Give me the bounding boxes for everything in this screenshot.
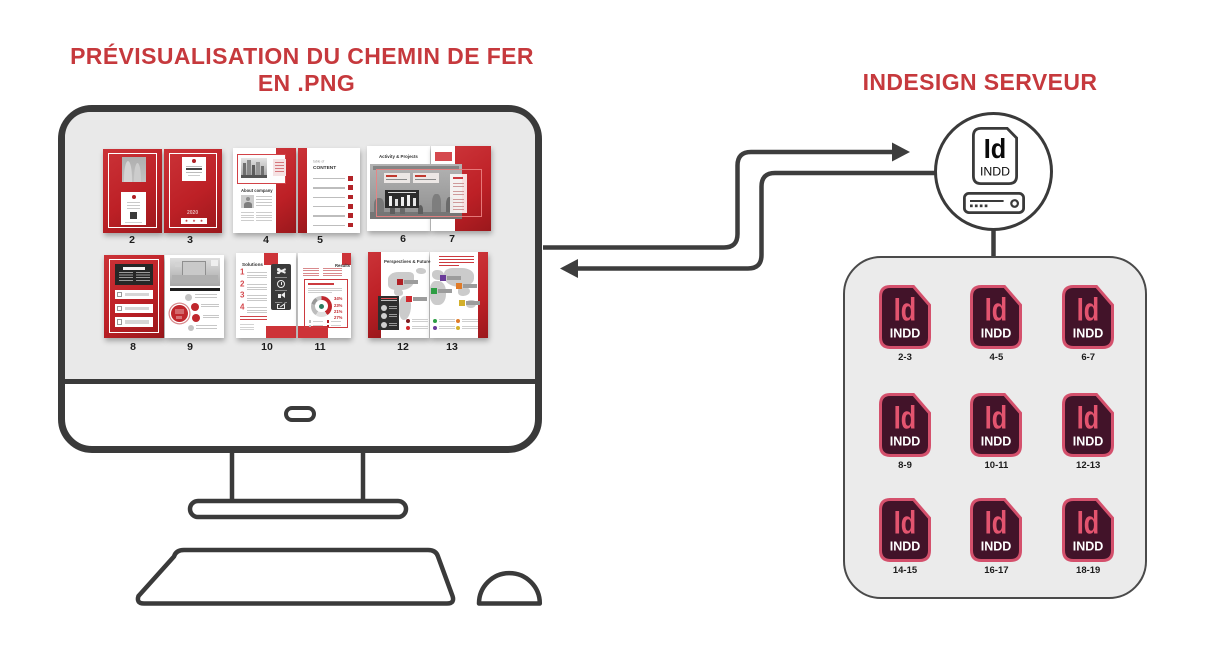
svg-text:Id: Id [984, 133, 1007, 164]
svg-text:INDD: INDD [890, 327, 921, 341]
svg-text:INDD: INDD [890, 435, 921, 449]
svg-text:INDD: INDD [980, 165, 1010, 179]
svg-text:Id: Id [985, 504, 1007, 540]
svg-text:Id: Id [985, 292, 1007, 328]
svg-text:INDD: INDD [981, 327, 1012, 341]
svg-text:Id: Id [894, 292, 916, 328]
svg-text:INDD: INDD [1073, 327, 1104, 341]
svg-text:INDD: INDD [1073, 435, 1104, 449]
svg-text:Id: Id [1077, 400, 1099, 436]
svg-text:INDD: INDD [981, 539, 1012, 553]
svg-text:Id: Id [894, 400, 916, 436]
svg-text:Id: Id [1077, 292, 1099, 328]
svg-text:Id: Id [894, 504, 916, 540]
svg-text:INDD: INDD [1073, 539, 1104, 553]
svg-text:Id: Id [1077, 504, 1099, 540]
svg-text:INDD: INDD [890, 539, 921, 553]
svg-text:INDD: INDD [981, 435, 1012, 449]
svg-text:Id: Id [985, 400, 1007, 436]
